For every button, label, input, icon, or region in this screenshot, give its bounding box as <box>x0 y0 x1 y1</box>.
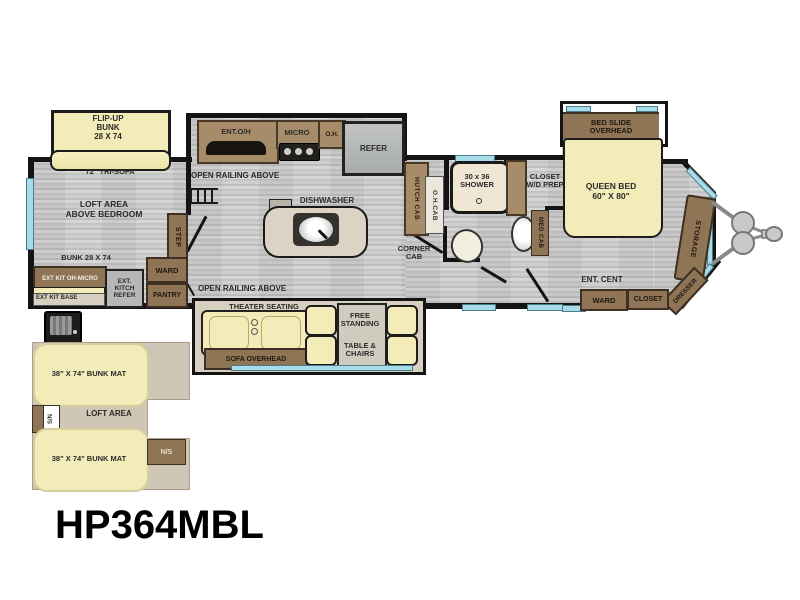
tv-knob <box>73 330 77 334</box>
dining-chair <box>386 305 418 336</box>
wall-segment <box>444 158 449 210</box>
hitch-icon <box>710 196 790 274</box>
rear-loft-area-label: LOFT AREA <box>72 410 146 419</box>
stove-icon <box>279 143 320 161</box>
dishwasher-label: DISHWASHER <box>296 197 358 206</box>
bunk-label: BUNK 28 X 74 <box>48 254 124 262</box>
tv-screen <box>50 316 72 335</box>
pantry: PANTRY <box>146 283 188 308</box>
refer: REFER <box>342 121 405 176</box>
window <box>462 304 496 311</box>
fireplace-icon <box>206 141 266 155</box>
floorplan-diagram: FLIP-UP BUNK 28 X 74 72" TRI-SOFA LOFT A… <box>0 0 800 600</box>
dining-chair <box>386 335 418 366</box>
flip-up-bunk-label: FLIP-UP BUNK 28 X 74 <box>61 115 155 142</box>
sofa-seat <box>209 316 249 350</box>
ward-front: WARD <box>146 257 188 283</box>
dining-chair <box>305 335 337 366</box>
ent-oh-cabinet: ENT.O/H <box>197 120 279 164</box>
corner-cab-label: CORNER CAB <box>390 245 438 262</box>
burner <box>284 148 291 155</box>
window <box>26 178 34 250</box>
sn-label: S/N <box>48 414 54 424</box>
sofa-seat <box>261 316 301 350</box>
shower: 30 x 36 SHOWER <box>450 161 510 214</box>
closet-bedroom-label: CLOSET <box>634 296 662 303</box>
bed-slide-overhead: BED SLIDE OVERHEAD <box>563 112 659 140</box>
shower-label: 30 x 36 SHOWER <box>453 173 501 190</box>
ext-kit-oh-micro-label: EXT KIT OH-MICRO <box>42 276 98 282</box>
bunk-mat-bottom: 38" X 74" BUNK MAT <box>33 428 149 492</box>
dining-chair <box>305 305 337 336</box>
table-chairs-label: TABLE & CHAIRS <box>339 342 381 359</box>
window <box>527 304 563 311</box>
ns-box: N/S <box>147 439 186 465</box>
ns-label: N/S <box>161 449 173 456</box>
living-slide: THEATER SEATING SOFA OVERHEAD FREE STAND… <box>192 298 426 375</box>
oh-cab-label: O.H.CAB <box>431 190 438 221</box>
sofa-overhead-label: SOFA OVERHEAD <box>226 356 286 363</box>
bunk-mat-bottom-label: 38" X 74" BUNK MAT <box>35 455 143 463</box>
ext-kit-base: EXT KIT BASE <box>33 293 105 306</box>
cupholder <box>251 328 258 335</box>
med-cab-label: MED CAB <box>537 217 543 249</box>
window <box>231 365 413 371</box>
pantry-label: PANTRY <box>153 292 181 299</box>
hutch-cab-label: HUTCH CAB <box>413 177 420 220</box>
ward-bedroom: WARD <box>580 289 628 311</box>
cupholder <box>251 319 258 326</box>
refer-label: REFER <box>360 144 387 153</box>
bunk-mat-top-label: 38" X 74" BUNK MAT <box>35 370 143 378</box>
ward-front-label: WARD <box>156 266 179 275</box>
loft-area-label: LOFT AREA ABOVE BEDROOM <box>48 200 160 219</box>
ent-oh-label: ENT.O/H <box>199 128 273 136</box>
closet-bedroom: CLOSET <box>627 289 669 310</box>
bunk-mat-top: 38" X 74" BUNK MAT <box>33 343 149 407</box>
micro-label: MICRO <box>278 129 316 137</box>
ext-kitch-refer: EXT. KITCH REFER <box>105 269 144 308</box>
queen-bed: QUEEN BED 60" X 80" <box>563 138 663 238</box>
shower-drain <box>476 198 482 204</box>
model-title: HP364MBL <box>55 503 264 548</box>
med-cab: MED CAB <box>531 210 549 256</box>
open-railing-top-label: OPEN RAILING ABOVE <box>191 172 283 181</box>
queen-bed-label: QUEEN BED 60" X 80" <box>565 182 657 201</box>
closet-wd-label: CLOSET W/D PREP <box>522 173 568 190</box>
ladder-icon <box>187 186 219 206</box>
wall-segment <box>186 113 407 118</box>
burner <box>306 148 313 155</box>
sink-bowl <box>299 217 333 242</box>
step-cabinet: STEP <box>167 213 188 262</box>
kitchen-island <box>263 206 368 258</box>
free-standing-label: FREE STANDING <box>339 312 381 329</box>
storage-label: STORAGE <box>689 220 702 259</box>
ext-kitch-refer-label: EXT. KITCH REFER <box>113 278 135 300</box>
dining-table: FREE STANDING TABLE & CHAIRS <box>337 303 387 371</box>
oh-label: O.H. <box>325 131 338 138</box>
sink-basin <box>293 213 339 246</box>
open-railing-bottom-label: OPEN RAILING ABOVE <box>198 285 290 294</box>
burner <box>295 148 302 155</box>
tri-sofa-label: 72" TRI-SOFA <box>70 168 150 176</box>
step-label: STEP <box>174 227 181 247</box>
oh-cab: O.H.CAB <box>425 176 444 234</box>
bed-slide-overhead-label: BED SLIDE OVERHEAD <box>590 119 633 136</box>
ward-bedroom-label: WARD <box>593 296 616 305</box>
ext-kit-base-label: EXT KIT BASE <box>36 295 77 302</box>
ent-cent-label: ENT. CENT <box>576 276 628 285</box>
tv-icon <box>44 311 82 344</box>
